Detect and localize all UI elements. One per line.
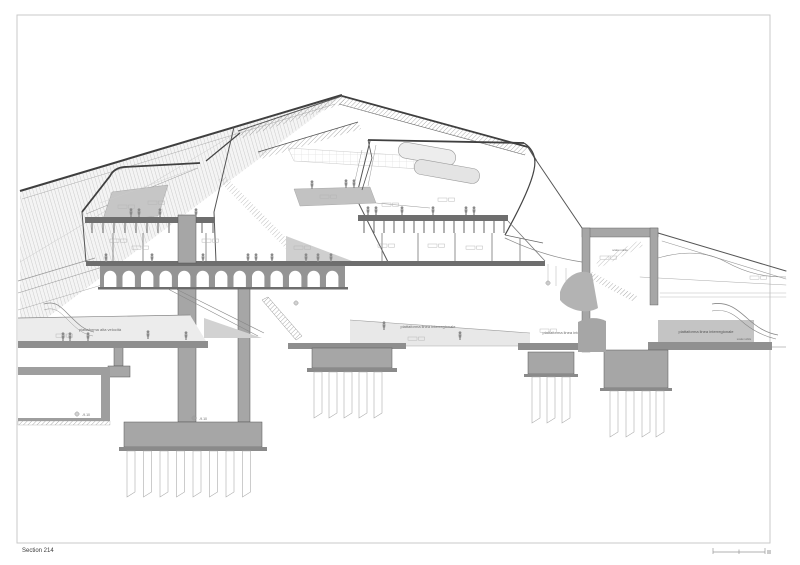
tunnel-roof — [18, 367, 110, 375]
footing-level-label: -9.10 — [199, 417, 207, 421]
core-top-slab — [582, 228, 658, 237]
pile — [562, 377, 570, 423]
core-right-wall — [650, 228, 658, 305]
pile — [127, 451, 135, 497]
platform-interregional-right-label: piattaforma linea interregionale — [679, 329, 735, 334]
footing-3 — [528, 352, 574, 374]
pile — [610, 391, 618, 437]
base-plate-3 — [524, 374, 578, 377]
pile — [642, 391, 650, 437]
pile — [547, 377, 555, 423]
arcade-base-line — [98, 287, 348, 290]
small-pier-pad — [108, 366, 130, 377]
mezzanine-band — [294, 187, 376, 206]
pile — [226, 451, 234, 497]
section-drawing: piattaforma alta velocità piattaforma li… — [0, 0, 800, 565]
tunnel-base-hatch — [18, 421, 110, 425]
platform-right-slab — [648, 342, 772, 350]
core-escalator-label: scala mobile — [612, 248, 628, 252]
right-upper-slab — [358, 215, 508, 221]
right-escalator-label: scala mobile — [737, 337, 752, 341]
pile — [243, 451, 251, 497]
pile — [374, 372, 382, 418]
pile — [193, 451, 201, 497]
section-title: Section 214 — [22, 548, 54, 554]
pile-group-3 — [532, 377, 570, 423]
pile — [329, 372, 337, 418]
footing-2 — [312, 348, 392, 368]
footing-4 — [604, 350, 668, 388]
central-pier-upper — [178, 215, 196, 263]
drawing-sheet: piattaforma alta velocità piattaforma li… — [0, 0, 800, 565]
arcade — [98, 266, 348, 290]
pile — [160, 451, 168, 497]
pile — [626, 391, 634, 437]
pile — [144, 451, 152, 497]
scale-bar-end — [767, 550, 771, 554]
base-plate-1 — [119, 447, 267, 451]
central-pier-lower — [178, 289, 196, 422]
secondary-pier — [238, 289, 250, 422]
core-lower-mass — [578, 318, 606, 352]
footing-1 — [124, 422, 262, 447]
pile — [359, 372, 367, 418]
pile — [532, 377, 540, 423]
tunnel-right-wall — [101, 367, 110, 421]
tunnel-level-label: -9.10 — [82, 413, 90, 417]
platform-high-speed-label: piattaforma alta velocità — [79, 327, 122, 332]
base-plate-4 — [600, 388, 672, 391]
pile — [656, 391, 664, 437]
pile — [177, 451, 185, 497]
platform-interregional-center-label: piattaforma linea interregionale — [401, 324, 457, 329]
pile — [210, 451, 218, 497]
base-plate-2 — [307, 368, 397, 372]
main-concourse-slab — [86, 261, 545, 266]
pile — [314, 372, 322, 418]
tunnel-floor — [18, 418, 110, 421]
pile — [344, 372, 352, 418]
platform-left-slab — [18, 341, 208, 348]
